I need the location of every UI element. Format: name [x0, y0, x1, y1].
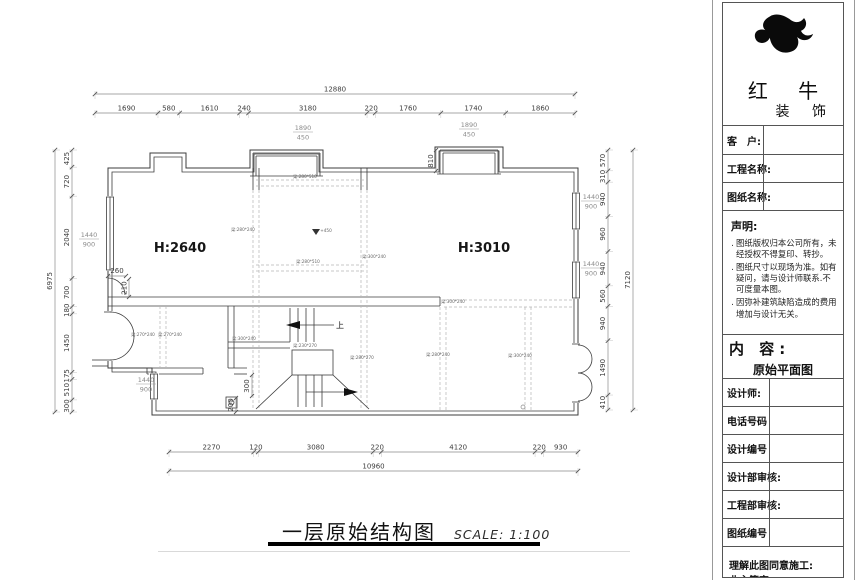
dim-label: 2270: [202, 444, 220, 452]
field-design-no-value: [769, 435, 843, 462]
room-label: H:2640: [154, 241, 206, 256]
window-dim-label: 1440: [138, 376, 155, 384]
dim-label: 1860: [531, 105, 549, 113]
bull-logo-icon: [747, 9, 823, 71]
dim-label: 175: [63, 369, 71, 382]
stair-flare: [256, 375, 292, 409]
signoff-block: 理解此图同意施工: 业主签字:: [723, 546, 843, 578]
dim-label: 220: [364, 105, 377, 113]
dim-label: 220: [371, 444, 384, 452]
window-dim-label: 1890: [295, 124, 312, 132]
dim-label: 940: [599, 262, 607, 275]
field-design-no: 设计编号: [723, 434, 843, 462]
dim-label: 2040: [63, 228, 71, 246]
beam-label: 梁:270*240: [158, 331, 182, 338]
signoff-owner-label: 业主签字:: [729, 572, 839, 578]
dim-label: 410: [599, 396, 607, 409]
window-dim-label: 1440: [583, 193, 600, 201]
field-drawingname-value: [763, 183, 843, 210]
dim-label: 7120: [624, 271, 632, 289]
field-design-review: 设计部审核:: [723, 462, 843, 490]
dim-label: 310: [599, 170, 607, 183]
field-design-review-label: 设计部审核:: [723, 469, 769, 484]
title-block-frame: 红 牛 装 饰 客 户: 工程名称: 图纸名称: 声明: . 图纸版权归本公司所…: [722, 2, 844, 578]
dim-label: 220: [533, 444, 546, 452]
statement-title: 声明:: [731, 218, 839, 234]
window-dim-label: 900: [585, 203, 597, 211]
floor-plan: 1690580161024031802201760174018601288022…: [0, 0, 712, 580]
statement-item: . 图纸版权归本公司所有，未经授权不得复印、转抄。: [729, 238, 839, 260]
window-dim-label: 1890: [461, 121, 478, 129]
window-dim-label: 900: [585, 270, 597, 278]
field-eng-review: 工程部审核:: [723, 490, 843, 518]
beam-label: 梁:230*270: [293, 342, 317, 349]
window-dim-label: 450: [463, 131, 475, 139]
window-dim-label: 1440: [81, 231, 98, 239]
beam-label: 梁:280*240: [426, 351, 450, 358]
stair-landing: [292, 350, 333, 375]
stair-up-label: 上: [336, 321, 344, 330]
field-project: 工程名称:: [723, 154, 843, 182]
statement-item-text: 图纸版权归本公司所有，未经授权不得复印、转抄。: [736, 238, 839, 260]
window-dim-label: 900: [83, 241, 95, 249]
beam-label: 梁:300*240: [441, 298, 465, 305]
statement-item: . 因弥补建筑缺陷造成的费用增加与设计无关。: [729, 297, 839, 319]
dim-label: 300: [63, 399, 71, 412]
field-drawingname-label: 图纸名称:: [723, 189, 763, 204]
dim-label: 960: [599, 227, 607, 240]
stair-up-arrow: [286, 321, 300, 329]
field-project-label: 工程名称:: [723, 161, 763, 176]
field-client: 客 户:: [723, 125, 843, 154]
dim-label: 1740: [464, 105, 482, 113]
dim-label: 1760: [399, 105, 417, 113]
field-phone-value: [769, 407, 843, 434]
dim-label: 120: [249, 444, 262, 452]
field-client-label: 客 户:: [723, 133, 763, 148]
misc-dim-label: 200: [227, 398, 235, 411]
window-dim-label: 900: [140, 386, 152, 394]
figure-title: 一层原始结构图 SCALE: 1:100: [282, 516, 550, 545]
beam-label: 梁:300*240: [362, 253, 386, 260]
dim-label: 700: [63, 286, 71, 299]
point-marker: [521, 405, 525, 409]
dim-label: 1490: [599, 359, 607, 377]
dim-label: 930: [554, 444, 567, 452]
brand-subname: 装 饰: [776, 101, 835, 121]
window-dim-label: 450: [297, 134, 309, 142]
misc-dim-label: 300: [243, 379, 251, 392]
field-sheet-no-value: [769, 519, 843, 546]
beam-label: 梁:270*240: [131, 331, 155, 338]
figure-title-text: 一层原始结构图: [282, 516, 436, 545]
field-drawingname: 图纸名称:: [723, 182, 843, 210]
beam-label: 梁:280*510: [296, 258, 320, 265]
beam-label: 梁:280*510: [293, 173, 317, 180]
brand-name: 红 牛: [723, 75, 843, 104]
drawing-sheet: 1690580161024031802201760174018601288022…: [0, 0, 860, 580]
dim-label: 560: [599, 289, 607, 302]
field-design-no-label: 设计编号: [723, 441, 769, 456]
field-designer-label: 设计师:: [723, 385, 769, 400]
misc-dim-label: 210: [121, 281, 129, 294]
bullet-icon: .: [729, 297, 736, 319]
field-design-review-value: [769, 463, 843, 490]
dim-label: 4120: [449, 444, 467, 452]
room-label: H:3010: [458, 241, 510, 256]
brand-logo-area: 红 牛 装 饰: [723, 3, 843, 125]
content-value: 原始平面图: [753, 361, 839, 378]
beam-label: 梁:300*240: [508, 352, 532, 359]
dim-label: 1450: [63, 334, 71, 352]
figure-scale-text: SCALE: 1:100: [454, 527, 550, 542]
title-underline-bar: [268, 542, 540, 546]
dim-label: 510: [63, 383, 71, 396]
field-eng-review-label: 工程部审核:: [723, 497, 769, 512]
field-designer: 设计师:: [723, 378, 843, 406]
field-sheet-no-label: 图纸编号: [723, 525, 769, 540]
dim-label: 10960: [362, 463, 384, 471]
misc-dim-label: 260: [110, 267, 123, 275]
beam-label: 梁:280*240: [231, 226, 255, 233]
dim-label: 6975: [46, 272, 54, 290]
outer-wall-inner: [112, 151, 574, 411]
dim-label: 1690: [118, 105, 136, 113]
outer-wall: [108, 147, 578, 415]
statement-item-text: 图纸尺寸以现场为准。如有疑问，请与设计师联系.不可度量本图。: [736, 262, 839, 295]
dim-label: 3180: [299, 105, 317, 113]
field-eng-review-value: [769, 491, 843, 518]
statement-item: . 图纸尺寸以现场为准。如有疑问，请与设计师联系.不可度量本图。: [729, 262, 839, 295]
field-project-value: [763, 155, 843, 182]
wall-opening: [104, 311, 114, 361]
title-block: 红 牛 装 饰 客 户: 工程名称: 图纸名称: 声明: . 图纸版权归本公司所…: [712, 0, 855, 580]
stair-down-arrow: [344, 388, 358, 396]
bullet-icon: .: [729, 262, 736, 295]
signoff-approve-label: 理解此图同意施工:: [729, 557, 839, 572]
dim-label: 12880: [324, 86, 346, 94]
bullet-icon: .: [729, 238, 736, 260]
statement-item-text: 因弥补建筑缺陷造成的费用增加与设计无关。: [736, 297, 839, 319]
title-underline-thin: [158, 551, 630, 552]
dim-label: 720: [63, 175, 71, 188]
beam-label: 梁:280*270: [350, 354, 374, 361]
window-dim-label: 1440: [583, 260, 600, 268]
content-block: 内 容: 原始平面图: [723, 334, 843, 378]
dim-label: 3080: [307, 444, 325, 452]
statement-block: 声明: . 图纸版权归本公司所有，未经授权不得复印、转抄。 . 图纸尺寸以现场为…: [723, 210, 843, 334]
level-marker-label: +450: [320, 228, 332, 233]
field-designer-value: [769, 379, 843, 406]
dim-label: 570: [599, 154, 607, 167]
content-label: 内 容:: [729, 338, 839, 359]
level-marker-icon: [312, 229, 320, 235]
beam-label: 梁:300*240: [232, 335, 256, 342]
field-sheet-no: 图纸编号: [723, 518, 843, 546]
dim-label: 580: [162, 105, 175, 113]
field-phone: 电话号码: [723, 406, 843, 434]
field-phone-label: 电话号码: [723, 413, 769, 428]
dim-label: 1610: [201, 105, 219, 113]
dim-label: 940: [599, 193, 607, 206]
dim-label: 425: [63, 152, 71, 165]
dim-label: 180: [63, 304, 71, 317]
misc-dim-label: 810: [427, 154, 435, 167]
field-client-value: [763, 126, 843, 154]
dim-label: 940: [599, 317, 607, 330]
